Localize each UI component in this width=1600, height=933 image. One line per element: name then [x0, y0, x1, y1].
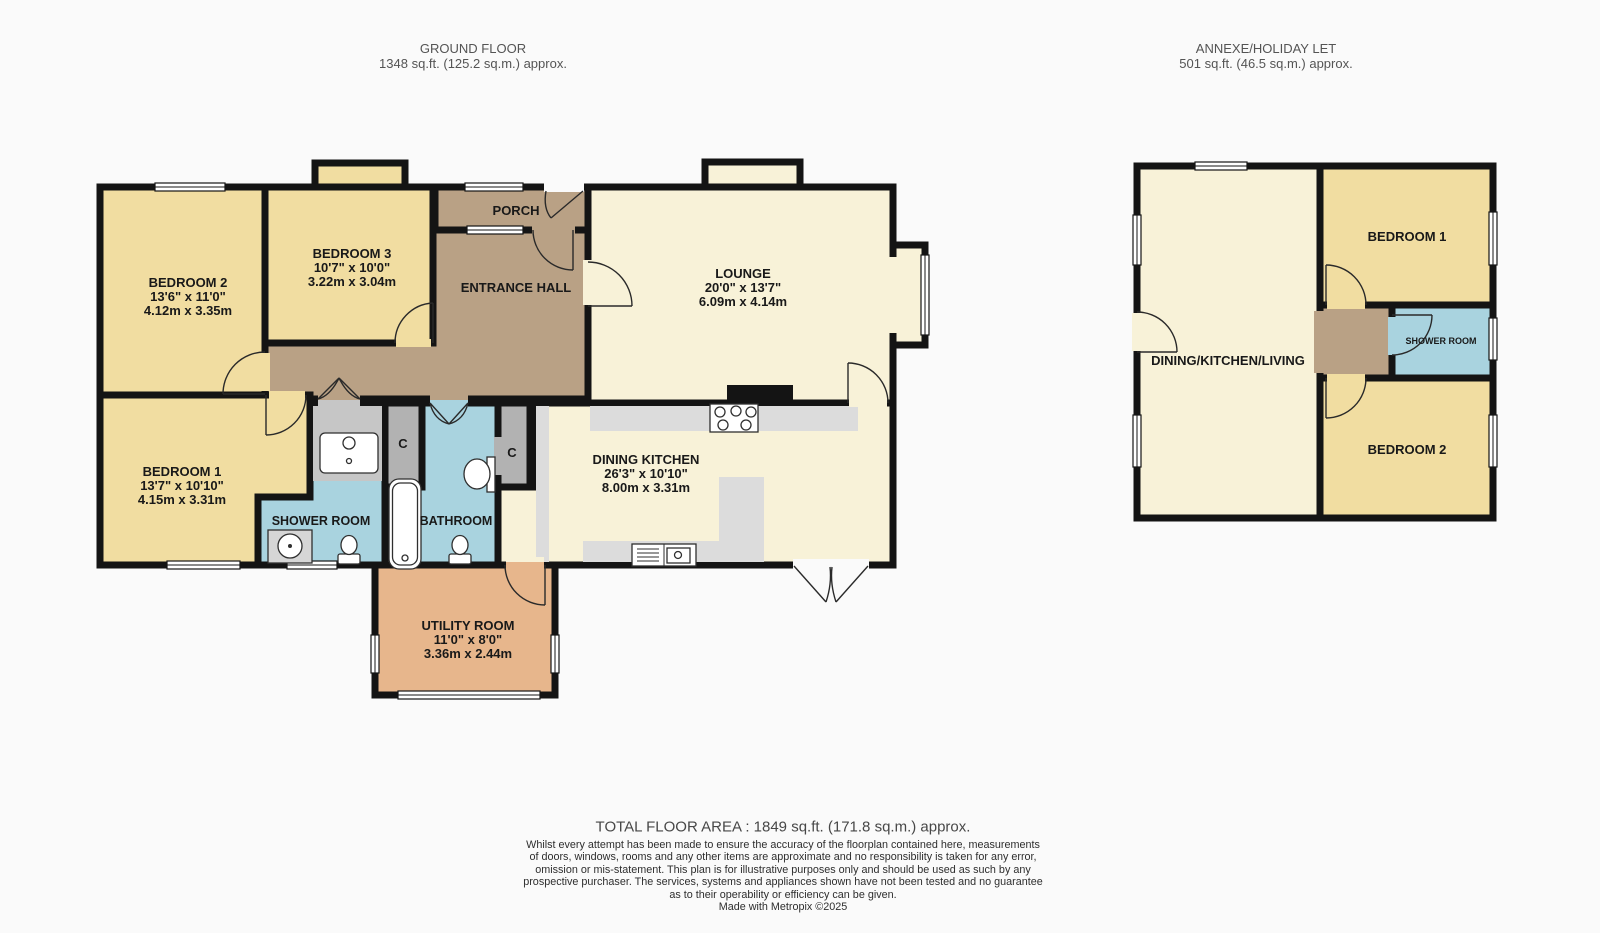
disclaimer-line: as to their operability or efficiency ca…: [523, 889, 1043, 901]
ground-floor-title: GROUND FLOOR: [379, 41, 567, 56]
ground-floor-area: 1348 sq.ft. (125.2 sq.m.) approx.: [379, 56, 567, 71]
room-name: BEDROOM 2: [144, 276, 232, 290]
label-lounge: LOUNGE 20'0" x 13'7" 6.09m x 4.14m: [699, 267, 787, 309]
room-dims-imperial: 20'0" x 13'7": [699, 281, 787, 295]
label-bathroom: BATHROOM: [420, 514, 493, 528]
room-name: BEDROOM 3: [308, 247, 396, 261]
opening-annexe-hall-dkl: [1314, 311, 1326, 373]
room-name: DINING KITCHEN: [593, 453, 700, 467]
room-name: LOUNGE: [699, 267, 787, 281]
label-shower-room: SHOWER ROOM: [272, 514, 371, 528]
label-annexe-bedroom2: BEDROOM 2: [1368, 443, 1447, 457]
disclaimer-line: Whilst every attempt has been made to en…: [523, 839, 1043, 851]
opening-bedroom3: [396, 339, 431, 347]
room-name: DINING/KITCHEN/LIVING: [1151, 354, 1305, 368]
opening-kitchen-utility-a: [506, 557, 544, 562]
opening-annexe-shower: [1388, 317, 1396, 355]
credit-line: Made with Metropix ©2025: [523, 901, 1043, 913]
opening-lounge-bay: [888, 257, 898, 333]
fireplace: [727, 385, 793, 403]
opening-porch-entry: [544, 182, 584, 192]
room-dims-metric: 8.00m x 3.31m: [593, 481, 700, 495]
floorplan-canvas: [0, 0, 1600, 933]
room-annexe-dkl: [1137, 166, 1320, 518]
total-floor-area: TOTAL FLOOR AREA : 1849 sq.ft. (171.8 sq…: [596, 819, 971, 836]
opening-french-doors: [793, 559, 869, 570]
disclaimer-line: prospective purchaser. The services, sys…: [523, 876, 1043, 888]
label-closet2: C: [507, 446, 516, 460]
toilet-bathroom: [449, 554, 471, 564]
opening-annexe-bedroom2: [1327, 374, 1365, 382]
label-bedroom1: BEDROOM 1 13'7" x 10'10" 4.15m x 3.31m: [138, 465, 226, 507]
room-name: BEDROOM 2: [1368, 443, 1447, 457]
opening-shower-bottom: [318, 400, 360, 407]
room-name: BEDROOM 1: [1368, 230, 1447, 244]
room-name: BEDROOM 1: [138, 465, 226, 479]
ground-floor-header: GROUND FLOOR 1348 sq.ft. (125.2 sq.m.) a…: [379, 41, 567, 71]
disclaimer-line: omission or mis-statement. This plan is …: [523, 864, 1043, 876]
annexe-header: ANNEXE/HOLIDAY LET 501 sq.ft. (46.5 sq.m…: [1179, 41, 1352, 71]
opening-annexe-bedroom1: [1327, 301, 1365, 309]
room-dims-metric: 3.36m x 2.44m: [422, 647, 515, 661]
label-annexe-shower: SHOWER ROOM: [1406, 336, 1477, 346]
room-dims-imperial: 26'3" x 10'10": [593, 467, 700, 481]
disclaimer-line: of doors, windows, rooms and any other i…: [523, 851, 1043, 863]
opening-kitchen-utility-b: [506, 562, 544, 571]
label-entrance-hall: ENTRANCE HALL: [461, 281, 572, 295]
room-dims-imperial: 10'7" x 10'0": [308, 261, 396, 275]
opening-lounge-kitchen: [849, 399, 887, 407]
opening-annexe-entry: [1132, 313, 1141, 351]
room-dims-metric: 3.22m x 3.04m: [308, 275, 396, 289]
room-name: SHOWER ROOM: [272, 514, 371, 528]
annexe-title: ANNEXE/HOLIDAY LET: [1179, 41, 1352, 56]
disclaimer: Whilst every attempt has been made to en…: [523, 839, 1043, 913]
room-name: BATHROOM: [420, 514, 493, 528]
room-name: C: [507, 446, 516, 460]
ground-floor-plan: [100, 162, 929, 699]
room-name: UTILITY ROOM: [422, 619, 515, 633]
kitchen-counter-left: [536, 406, 549, 562]
room-dims-imperial: 13'6" x 11'0": [144, 290, 232, 304]
label-bedroom3: BEDROOM 3 10'7" x 10'0" 3.22m x 3.04m: [308, 247, 396, 289]
room-dims-metric: 6.09m x 4.14m: [699, 295, 787, 309]
label-porch: PORCH: [493, 204, 540, 218]
opening-bedroom2: [260, 353, 270, 391]
opening-bedroom1: [269, 391, 305, 399]
opening-porch-hall: [532, 225, 575, 235]
floorplan-page: GROUND FLOOR 1348 sq.ft. (125.2 sq.m.) a…: [0, 0, 1600, 933]
room-dims-metric: 4.12m x 3.35m: [144, 304, 232, 318]
room-dims-imperial: 11'0" x 8'0": [422, 633, 515, 647]
label-dining-kitchen: DINING KITCHEN 26'3" x 10'10" 8.00m x 3.…: [593, 453, 700, 495]
opening-bathroom-bottom: [430, 400, 468, 407]
opening-hall-lounge: [583, 260, 594, 305]
kitchen-counter-island: [719, 477, 764, 541]
toilet-shower-room: [338, 554, 360, 564]
room-name: SHOWER ROOM: [1406, 336, 1477, 346]
room-annexe-hall: [1320, 305, 1392, 378]
room-dims-imperial: 13'7" x 10'10": [138, 479, 226, 493]
label-annexe-dkl: DINING/KITCHEN/LIVING: [1151, 354, 1305, 368]
label-bedroom2: BEDROOM 2 13'6" x 11'0" 4.12m x 3.35m: [144, 276, 232, 318]
label-utility: UTILITY ROOM 11'0" x 8'0" 3.36m x 2.44m: [422, 619, 515, 661]
label-closet1: C: [398, 437, 407, 451]
label-annexe-bedroom1: BEDROOM 1: [1368, 230, 1447, 244]
room-name: PORCH: [493, 204, 540, 218]
annexe-area: 501 sq.ft. (46.5 sq.m.) approx.: [1179, 56, 1352, 71]
room-name: ENTRANCE HALL: [461, 281, 572, 295]
opening-bathroom-top: [430, 394, 468, 400]
room-dims-metric: 4.15m x 3.31m: [138, 493, 226, 507]
room-name: C: [398, 437, 407, 451]
